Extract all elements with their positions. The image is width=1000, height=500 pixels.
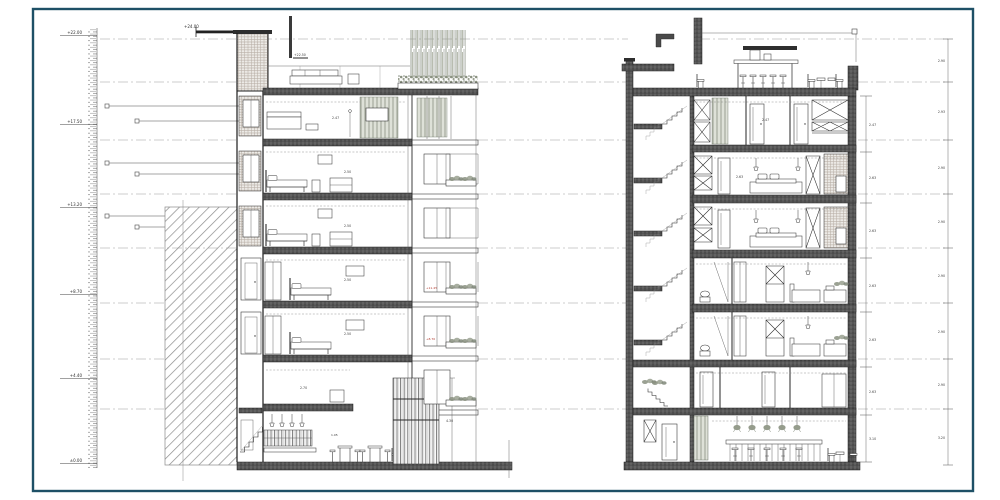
stair-flight xyxy=(642,379,668,406)
stair-flight xyxy=(634,106,687,140)
elevation-ruler: +22.00 +17.50 +13.20 +8.70 +4.40 ±0.00 xyxy=(60,28,97,468)
dim-label: 4.30 xyxy=(446,419,453,423)
dim-label: 2.70 xyxy=(300,386,307,390)
red-level-tag: +11.45 xyxy=(426,286,437,290)
adjacent-building-hatch xyxy=(165,200,237,481)
callout-tag xyxy=(135,225,139,229)
dim-label: 3.20 xyxy=(938,436,945,440)
bedroom: 2.50 xyxy=(265,262,364,300)
dim-label: 2.50 xyxy=(344,224,351,228)
roof-marker xyxy=(852,29,857,34)
callout-tag xyxy=(135,172,139,176)
solar-panel xyxy=(743,46,797,50)
level-annotation: +24.00 xyxy=(184,24,199,29)
dim-label: 2.93 xyxy=(938,110,945,114)
dim-label: 2.90 xyxy=(938,383,945,387)
dim-label: 2.90 xyxy=(938,220,945,224)
dim-label: 2.63 xyxy=(869,229,876,233)
facade-floor xyxy=(424,370,477,406)
roof-terrace xyxy=(697,50,843,88)
dim-label: 1.05 xyxy=(331,433,338,437)
restaurant xyxy=(644,416,857,462)
dim-label: 2.47 xyxy=(332,116,339,120)
facade-floor xyxy=(424,154,478,186)
drawing-sheet: +22.00 +17.50 +13.20 +8.70 +4.40 ±0.00 +… xyxy=(0,0,1000,500)
bedroom: 2.50 xyxy=(265,316,364,354)
dim-label: 3.10 xyxy=(869,437,876,441)
dim-label: 2.63 xyxy=(869,390,876,394)
dim-label: 2.63 xyxy=(869,176,876,180)
dim-label: 2.50 xyxy=(344,170,351,174)
guest-room: 2.63 xyxy=(694,154,848,194)
dim-label: 2.90 xyxy=(938,330,945,334)
top-floor-rooms: 2.47 xyxy=(694,96,848,145)
architectural-section-drawing: +22.00 +17.50 +13.20 +8.70 +4.40 ±0.00 +… xyxy=(0,0,1000,500)
mezzanine: 2.70 xyxy=(300,386,344,402)
bedroom: 2.50 xyxy=(266,155,352,192)
dim-label: 2.47 xyxy=(762,118,769,122)
elevation-label: +4.40 xyxy=(70,373,83,378)
callout-tag xyxy=(105,161,109,165)
stair-flight xyxy=(634,322,687,356)
bedroom: 2.50 xyxy=(266,209,352,246)
dim-label: 2.90 xyxy=(938,274,945,278)
facade-floor: +11.45 xyxy=(424,262,478,294)
elevation-label: +13.20 xyxy=(67,202,82,207)
living-room: 2.47 xyxy=(267,97,398,138)
dimension-chain-outer: 2.90 2.93 2.90 2.90 2.90 2.90 2.90 3.20 xyxy=(938,39,953,465)
roof-level-annotation: +24.00 xyxy=(184,24,234,37)
stair-flight xyxy=(634,268,687,302)
planter-hedge xyxy=(398,75,478,84)
floor-slabs xyxy=(633,88,856,415)
elevation-label: ±0.00 xyxy=(70,458,83,463)
section-b: 2.47 2.63 xyxy=(622,18,953,470)
suite xyxy=(700,312,849,360)
facade-floor: +8.70 xyxy=(424,316,478,348)
vegetation-screen xyxy=(410,30,466,78)
stair-flight xyxy=(634,160,687,194)
callout-tag xyxy=(105,214,109,218)
elevation-label: +8.70 xyxy=(70,289,83,294)
louver-screen xyxy=(694,416,708,460)
suite xyxy=(700,258,849,304)
elevation-label: +17.50 xyxy=(67,119,82,124)
dim-label: 2.47 xyxy=(869,123,876,127)
dim-label: 2.50 xyxy=(344,332,351,336)
dim-label: 2.63 xyxy=(869,284,876,288)
ruler-ticks xyxy=(88,28,97,468)
facade-floor xyxy=(424,208,478,238)
guest-room xyxy=(694,207,848,248)
red-level-tag: +8.70 xyxy=(426,337,435,341)
stair-flight xyxy=(634,213,687,247)
dimension-chain-inner: 2.47 2.63 2.63 2.63 2.63 2.63 3.10 xyxy=(860,96,876,462)
callout-tag xyxy=(135,119,139,123)
tv xyxy=(366,108,388,121)
dim-label: 2.50 xyxy=(344,278,351,282)
dim-label: 2.90 xyxy=(938,59,945,63)
dim-label: 2.90 xyxy=(938,166,945,170)
dim-label: 2.63 xyxy=(869,338,876,342)
elevation-label: +22.00 xyxy=(67,30,82,35)
callout-tag xyxy=(105,104,109,108)
dim-label: 2.63 xyxy=(736,175,743,179)
level-annotation: +22.50 xyxy=(294,53,306,57)
